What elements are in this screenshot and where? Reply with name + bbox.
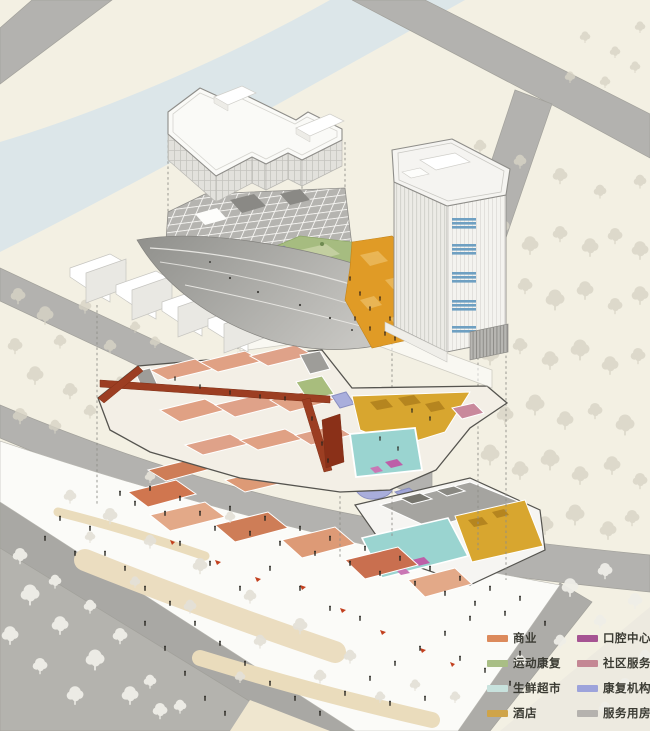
architecture-diagram-page: 商业 运动康复 生鲜超市 酒店 口腔中心 社区服务 康复机构 服务用房 — [0, 0, 650, 731]
legend-label: 康复机构 — [603, 680, 650, 696]
tower — [385, 139, 510, 362]
legend-label: 运动康复 — [513, 655, 561, 671]
legend-label: 服务用房 — [603, 705, 650, 721]
legend-label: 酒店 — [513, 705, 537, 721]
site-axonometric-figure — [0, 0, 650, 731]
legend-swatch — [487, 685, 508, 692]
legend-label: 生鲜超市 — [513, 680, 561, 696]
legend-item-commercial: 商业 — [487, 630, 561, 646]
legend-item-hotel: 酒店 — [487, 705, 561, 721]
legend-label: 口腔中心 — [603, 630, 650, 646]
legend-item-supermarket: 生鲜超市 — [487, 680, 561, 696]
legend-column-2: 口腔中心 社区服务 康复机构 服务用房 — [577, 630, 650, 721]
legend-label: 商业 — [513, 630, 537, 646]
legend-label: 社区服务 — [603, 655, 650, 671]
legend-column-1: 商业 运动康复 生鲜超市 酒店 — [487, 630, 561, 721]
legend: 商业 运动康复 生鲜超市 酒店 口腔中心 社区服务 康复机构 服务用房 — [487, 630, 650, 721]
legend-item-rehab-institution: 康复机构 — [577, 680, 650, 696]
legend-item-sports-rehab: 运动康复 — [487, 655, 561, 671]
legend-swatch — [487, 710, 508, 717]
roof-bar-building — [168, 86, 344, 202]
legend-swatch — [577, 685, 598, 692]
legend-swatch — [577, 710, 598, 717]
legend-item-dental-center: 口腔中心 — [577, 630, 650, 646]
legend-swatch — [487, 660, 508, 667]
legend-item-community-service: 社区服务 — [577, 655, 650, 671]
legend-swatch — [577, 635, 598, 642]
legend-item-service-rooms: 服务用房 — [577, 705, 650, 721]
legend-swatch — [577, 660, 598, 667]
legend-swatch — [487, 635, 508, 642]
